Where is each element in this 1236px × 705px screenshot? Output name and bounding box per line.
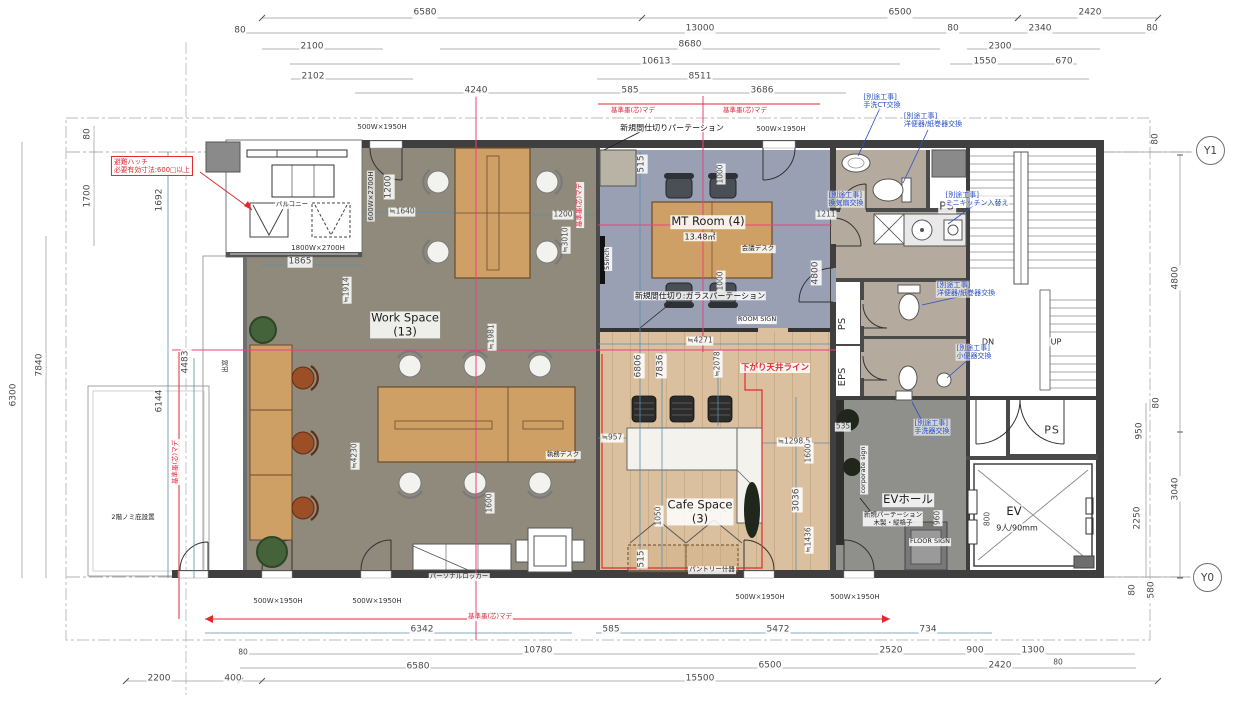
note-reference-line: 基準墨(芯)マデ xyxy=(172,439,180,485)
dims-interior-label: 535 xyxy=(835,423,851,432)
dims-interior-label: 1692 xyxy=(155,188,166,213)
dims-interior-label: 6806 xyxy=(634,354,645,379)
door-size-label: 600W×2700H xyxy=(367,170,375,221)
note-new-partition: 新規間仕切りパーテーション xyxy=(619,123,725,132)
dims-bottom-label: 1300 xyxy=(1021,646,1046,657)
door-size-label: 500W×1950H xyxy=(356,123,407,131)
dims-top-label: 80 xyxy=(1145,24,1158,35)
dims-right-label: 80 xyxy=(1152,396,1163,409)
door-size-label: 500W×1950H xyxy=(252,597,303,605)
dims-interior-label: 1600 xyxy=(805,442,814,463)
eave-note: 2階ノミ庇設置 xyxy=(110,514,155,522)
bay-window-label: 出窓 xyxy=(222,359,230,374)
room-label-work-space: Work Space (13) xyxy=(370,311,440,338)
note-reference-line: 基準墨(芯)マデ xyxy=(576,182,584,228)
furniture-label-pantry: パントリー什器 xyxy=(688,566,736,574)
dims-left-label: 6300 xyxy=(9,383,20,408)
note-separate-work-toilet: [別途工事] 洋便器/紙巻器交換 xyxy=(903,112,963,129)
dims-top-label: 4240 xyxy=(464,86,489,97)
dims-left-label: 80 xyxy=(83,127,94,140)
dims-top-label: 13000 xyxy=(685,24,716,35)
dims-interior-label: 1000 xyxy=(717,163,726,184)
annotation-layer: 6580130006500242080802340802100868023001… xyxy=(0,0,1236,705)
dims-interior-label: 3036 xyxy=(792,488,803,513)
dims-bottom-label: 2420 xyxy=(988,661,1013,672)
door-size-label: 500W×1950H xyxy=(755,125,806,133)
dims-interior-label: ≒2078 xyxy=(714,350,723,377)
note-reference-line: 基準墨(芯)マデ xyxy=(610,107,656,115)
dims-bottom-label: 6342 xyxy=(410,625,435,636)
dims-bottom-label: 5472 xyxy=(766,625,791,636)
mt-room-area: 13.48㎡ xyxy=(684,232,717,241)
room-sign-label: ROOM SIGN xyxy=(737,316,777,324)
dims-interior-label: 800 xyxy=(984,511,993,527)
door-size-label: 500W×1950H xyxy=(734,593,785,601)
stair-up: UP xyxy=(1050,337,1063,346)
door-size-label: 1800W×2700H xyxy=(290,244,346,252)
room-label-ps: PS xyxy=(1043,425,1061,438)
dims-top-label: 2300 xyxy=(988,42,1013,53)
dims-bottom-label: 585 xyxy=(601,625,620,636)
note-escape-hatch: 避難ハッチ 必要有効寸法:600□以上 xyxy=(111,156,193,176)
dims-interior-label: 4483 xyxy=(181,350,192,375)
note-reference-line: 基準墨(芯)マデ xyxy=(467,613,513,621)
ev-capacity: 9人/90mm xyxy=(995,523,1039,532)
note-separate-work-ct: [別途工事] 手洗CT交換 xyxy=(862,93,901,110)
dims-interior-label: 515 xyxy=(637,154,648,173)
note-separate-work-fan: [別途工事] 換気扇交換 xyxy=(828,191,865,208)
dims-top-label: 1550 xyxy=(973,57,998,68)
corporate-sign-label: corporate sign xyxy=(860,445,868,494)
dims-interior-label: 515 xyxy=(637,549,648,568)
dims-right-label: 80 xyxy=(1128,583,1139,596)
dims-top-label: 2102 xyxy=(301,72,326,83)
dims-interior-label: ≒3010 xyxy=(562,226,571,253)
dims-bottom-label: 900 xyxy=(965,646,984,657)
dims-right-label: 4800 xyxy=(1171,266,1182,291)
dims-bottom-label: 6500 xyxy=(758,661,783,672)
note-separate-work-urinal: [別途工事] 小便器交換 xyxy=(956,344,993,361)
dims-bottom-label: 80 xyxy=(1052,659,1064,668)
room-label-ev: EV xyxy=(1005,505,1022,519)
room-label-cafe-space: Cafe Space (3) xyxy=(667,498,734,525)
room-label-eps: EPS xyxy=(837,367,849,388)
dims-interior-label: 7836 xyxy=(656,354,667,379)
dims-interior-label: ≒1436 xyxy=(805,526,814,553)
grid-bubble-y1-text: Y1 xyxy=(1204,145,1217,157)
dims-interior-label: 4800 xyxy=(811,261,822,286)
dims-top-label: 80 xyxy=(946,24,959,35)
dims-right-label: 3040 xyxy=(1171,477,1182,502)
display-55inch-label: 55inch xyxy=(604,247,612,271)
dims-interior-label: ≒1640 xyxy=(388,208,415,217)
dims-interior-label: 1000 xyxy=(717,270,726,291)
note-separate-work-kitchen: [別途工事] ミニキッチン入替え xyxy=(945,191,1010,208)
dims-right-label: 80 xyxy=(1151,132,1162,145)
room-label-ps: PS xyxy=(837,317,849,331)
dims-bottom-label: 80 xyxy=(237,649,249,658)
dims-top-label: 6500 xyxy=(888,8,913,19)
dims-interior-label: 1865 xyxy=(288,257,313,268)
dims-right-label: 580 xyxy=(1147,580,1158,599)
dims-interior-label: 1600 xyxy=(486,492,495,513)
grid-bubble-y0-text: Y0 xyxy=(1201,572,1214,584)
dims-interior-label: 1211 xyxy=(815,211,836,220)
dims-top-label: 585 xyxy=(620,86,639,97)
dims-left-label: 7840 xyxy=(35,353,46,378)
furniture-label-personal-locker: パーソナルロッカー xyxy=(429,573,490,581)
floor-sign-label: FLOOR SIGN xyxy=(909,538,951,546)
dims-interior-label: 1050 xyxy=(655,505,664,526)
dims-interior-label: ≒4271 xyxy=(686,337,713,346)
dims-top-label: 3686 xyxy=(750,86,775,97)
dims-top-label: 2100 xyxy=(300,42,325,53)
note-dropped-ceiling-line: 下がり天井ライン xyxy=(740,363,810,373)
floor-plan-page: 6580130006500242080802340802100868023001… xyxy=(0,0,1236,705)
dims-bottom-label: 2520 xyxy=(879,646,904,657)
dims-bottom-label: 10780 xyxy=(523,646,554,657)
dims-top-label: 2340 xyxy=(1028,24,1053,35)
dims-bottom-label: 400 xyxy=(223,674,242,685)
dims-bottom-label: 6580 xyxy=(406,662,431,673)
dims-top-label: 670 xyxy=(1054,57,1073,68)
room-label-ev-hall: EVホール xyxy=(882,493,934,507)
dims-interior-label: 1200 xyxy=(384,175,395,200)
note-reference-line: 基準墨(芯)マデ xyxy=(722,107,768,115)
dims-interior-label: 1200 xyxy=(552,211,573,220)
dims-interior-label: ≒1914 xyxy=(343,276,352,303)
furniture-label-work-desk: 執務デスク xyxy=(546,451,581,459)
dims-interior-label: 6144 xyxy=(155,389,166,414)
note-separate-work-basin: [別途工事] 手洗器交換 xyxy=(914,419,951,436)
dims-interior-label: ≒4230 xyxy=(351,442,360,469)
dims-top-label: 2420 xyxy=(1078,8,1103,19)
note-wood-partition: 新規パーテーション 木製・縦格子 xyxy=(863,511,923,526)
dims-bottom-label: 15500 xyxy=(685,674,716,685)
dims-interior-label: 960 xyxy=(934,510,943,526)
dims-interior-label: ≒957 xyxy=(601,434,624,443)
dims-top-label: 10613 xyxy=(641,57,672,68)
grid-bubble-y1: Y1 xyxy=(1196,136,1225,165)
grid-bubble-y0: Y0 xyxy=(1193,563,1222,592)
dims-right-label: 2250 xyxy=(1133,506,1144,531)
dims-bottom-label: 734 xyxy=(918,625,937,636)
room-label-balcony: バルコニー xyxy=(275,201,309,209)
furniture-label-meeting-desk: 会議デスク xyxy=(741,245,776,253)
note-separate-work-toilet2: [別途工事] 洋便器/紙巻器交換 xyxy=(936,281,996,298)
dims-bottom-label: 2200 xyxy=(147,674,172,685)
dims-top-label: 6580 xyxy=(413,8,438,19)
dims-interior-label: ≒1981 xyxy=(488,323,497,350)
dims-left-label: 1700 xyxy=(83,184,94,209)
door-size-label: 500W×1950H xyxy=(351,597,402,605)
dims-top-label: 8680 xyxy=(678,40,703,51)
door-size-label: 500W×1950H xyxy=(829,593,880,601)
dims-top-label: 80 xyxy=(233,26,246,37)
dims-right-label: 950 xyxy=(1135,421,1146,440)
note-glass-partition: 新規間仕切り:ガラスパーテーション xyxy=(634,291,766,300)
dims-top-label: 8511 xyxy=(688,72,713,83)
room-label-mt-room: MT Room (4) xyxy=(670,215,745,229)
